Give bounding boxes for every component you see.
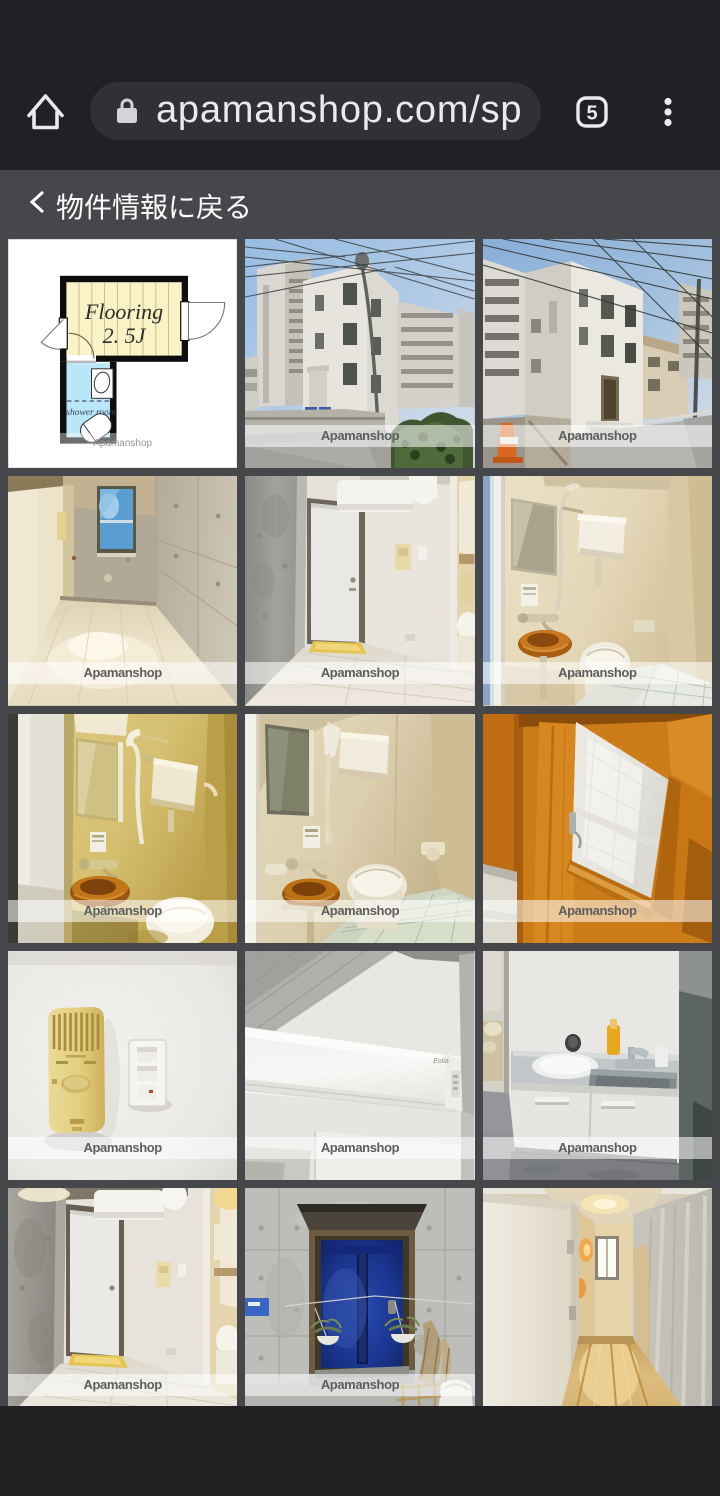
svg-text:shower room: shower room xyxy=(66,408,116,418)
svg-text:5: 5 xyxy=(586,103,597,125)
svg-text:2. 5J: 2. 5J xyxy=(103,323,147,348)
svg-text:Eolia: Eolia xyxy=(434,1058,450,1065)
svg-text:Flooring: Flooring xyxy=(84,299,163,324)
